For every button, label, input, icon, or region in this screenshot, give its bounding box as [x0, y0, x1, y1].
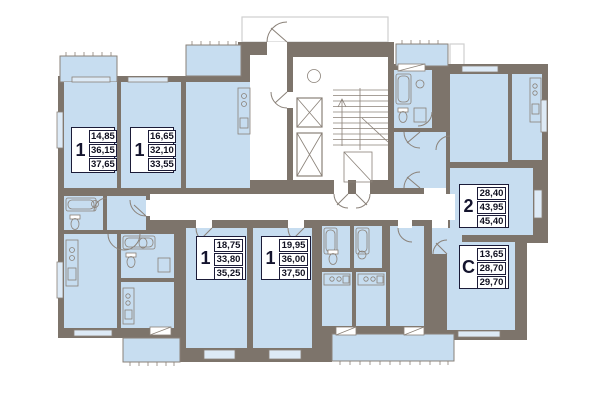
apartment-area: 36,15 [89, 144, 117, 157]
room-apt5-kitchen [512, 74, 542, 160]
balcony [396, 44, 448, 66]
apartment-area: 37,50 [279, 267, 308, 280]
apartment-type: 1 [74, 130, 87, 170]
apartment-area: 18,75 [214, 239, 243, 252]
room-apt2-kitchen [186, 82, 250, 188]
apartment-type: 2 [462, 187, 475, 225]
floor-plan-canvas: 1 14,85 36,15 37,65 1 16,65 32,10 33,55 … [0, 0, 600, 400]
apartment-area: 45,40 [477, 215, 506, 228]
apartment-type: 1 [264, 239, 277, 277]
room-apt5-bedroom [450, 74, 508, 162]
apartment-type: 1 [133, 130, 146, 170]
apartment-area: 43,95 [477, 201, 506, 214]
room-hall-left [107, 196, 146, 230]
corridor [150, 194, 455, 220]
apartment-area: 28,40 [477, 187, 506, 200]
apartment-area: 35,25 [214, 267, 243, 280]
elevator-icon [297, 98, 322, 176]
apartment-label-4: 1 19,95 36,00 37,50 [261, 236, 311, 280]
floor-plan [0, 0, 600, 400]
elevator-lobby [250, 55, 287, 180]
apartment-label-5: 2 28,40 43,95 45,40 [459, 184, 509, 228]
apartment-area: 14,85 [89, 130, 117, 143]
room-kitchen-left [64, 234, 117, 328]
balcony [123, 338, 180, 362]
apartment-area: 29,70 [477, 276, 506, 289]
apartment-area: 19,95 [279, 239, 308, 252]
apartment-label-2: 1 16,65 32,10 33,55 [130, 127, 174, 173]
apartment-area: 13,65 [477, 248, 506, 261]
room-hall-right [394, 132, 446, 188]
apartment-area: 36,00 [279, 253, 308, 266]
apartment-label-3: 1 18,75 33,80 35,25 [196, 236, 246, 280]
apartment-area: 37,65 [89, 158, 117, 171]
balcony [186, 45, 241, 76]
apartment-type: C [462, 248, 475, 286]
apartment-area: 28,70 [477, 262, 506, 275]
apartment-type: 1 [199, 239, 212, 277]
apartment-area: 32,10 [148, 144, 176, 157]
entrance-canopy [242, 17, 388, 42]
apartment-area: 16,65 [148, 130, 176, 143]
room-apt6-hall [432, 228, 462, 254]
apartment-area: 33,55 [148, 158, 176, 171]
apartment-label-1: 1 14,85 36,15 37,65 [71, 127, 115, 173]
roof-notch [450, 44, 464, 66]
apartment-label-6: C 13,65 28,70 29,70 [459, 245, 509, 289]
balcony [332, 334, 454, 361]
apartment-area: 33,80 [214, 253, 243, 266]
